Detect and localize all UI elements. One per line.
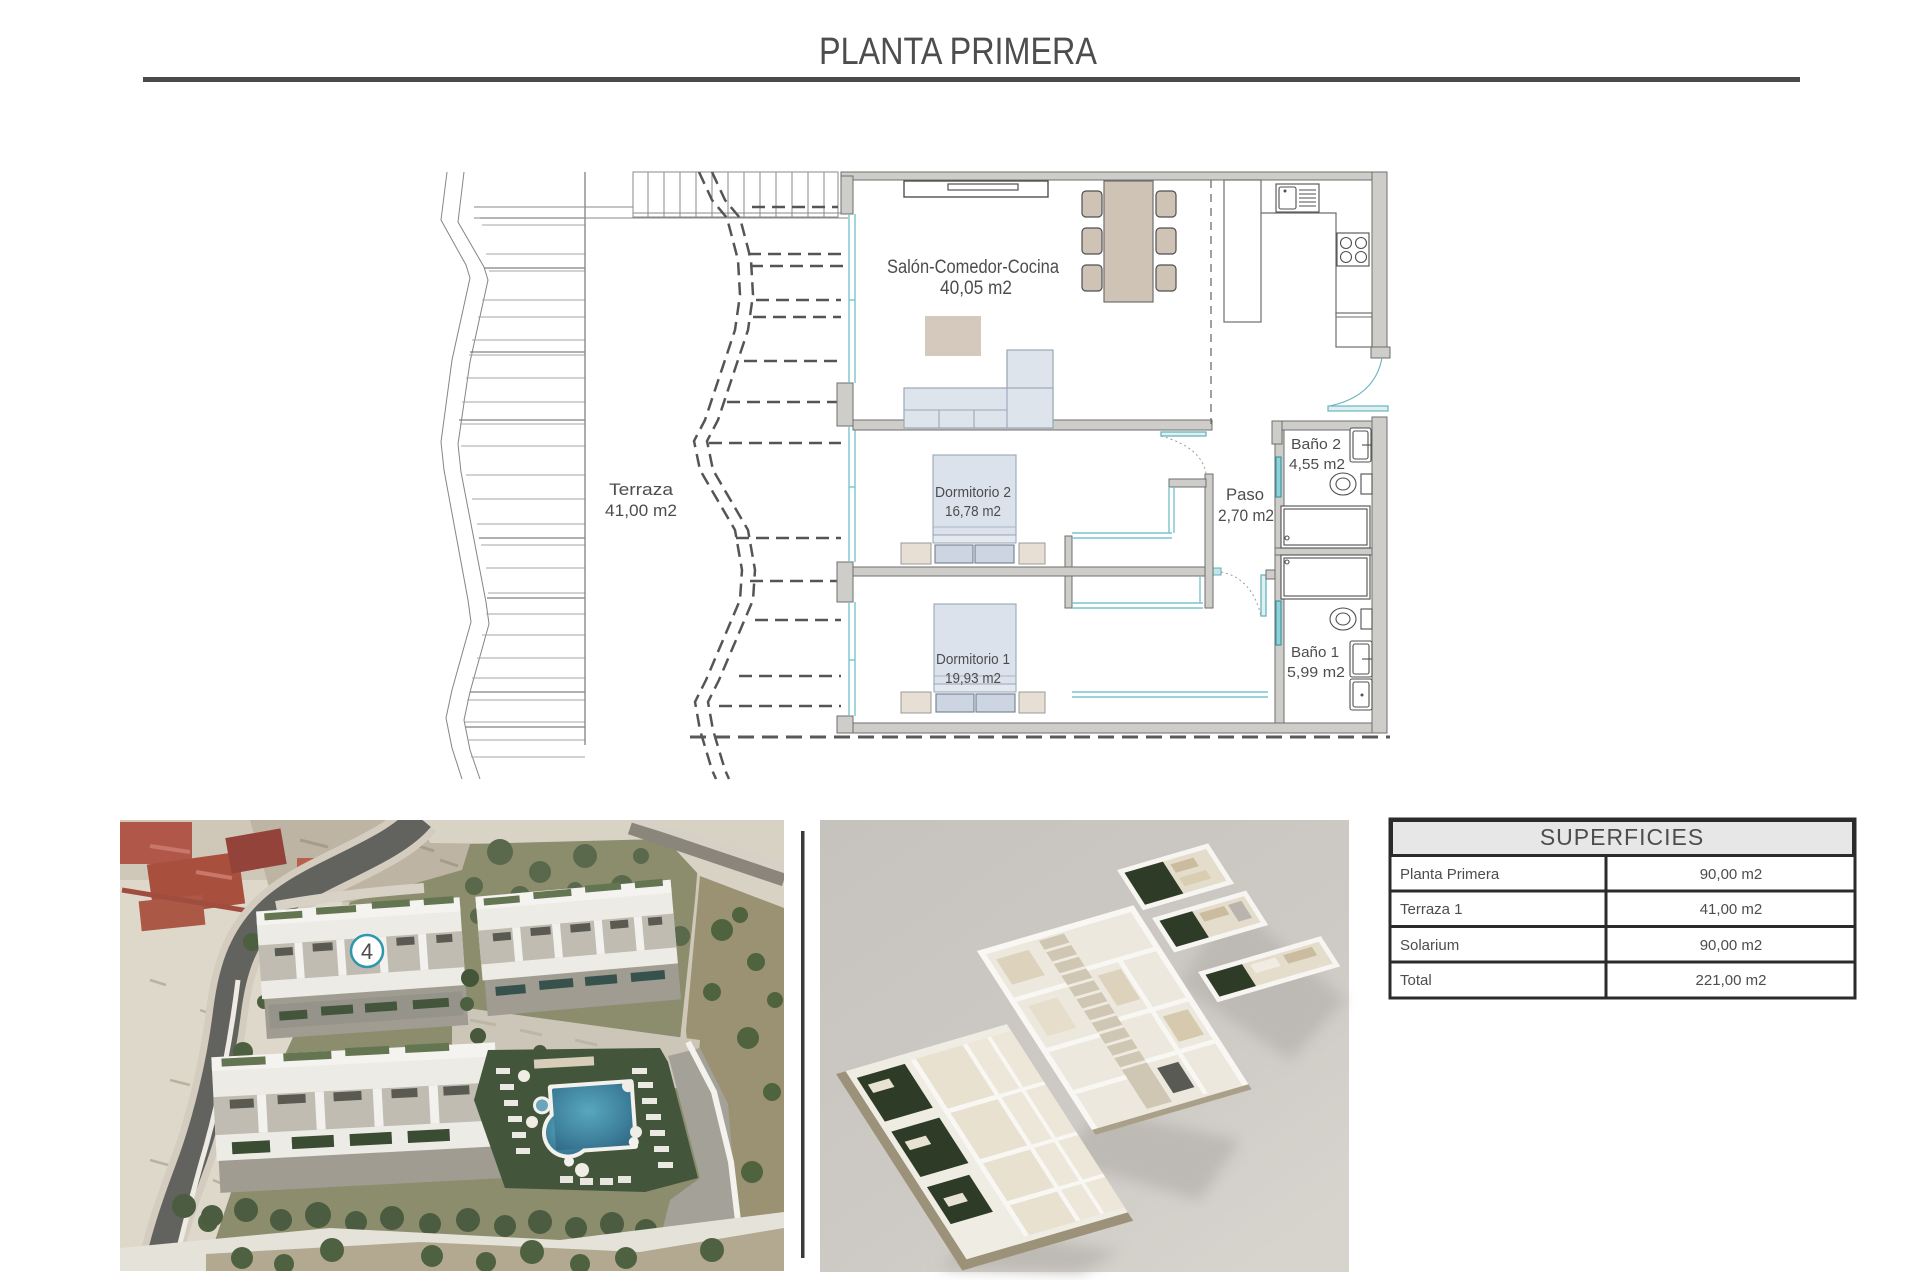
svg-text:4,55 m2: 4,55 m2: [1289, 457, 1345, 473]
svg-text:221,00 m2: 221,00 m2: [1696, 972, 1767, 989]
svg-text:41,00 m2: 41,00 m2: [605, 501, 677, 520]
svg-text:16,78 m2: 16,78 m2: [945, 504, 1001, 520]
svg-text:Baño 1: Baño 1: [1291, 645, 1339, 661]
svg-text:19,93 m2: 19,93 m2: [945, 671, 1001, 687]
svg-text:Dormitorio 2: Dormitorio 2: [935, 485, 1011, 501]
svg-text:90,00 m2: 90,00 m2: [1700, 866, 1763, 883]
svg-text:2,70 m2: 2,70 m2: [1218, 506, 1274, 525]
svg-text:Planta Primera: Planta Primera: [1400, 866, 1500, 883]
svg-text:5,99 m2: 5,99 m2: [1287, 665, 1345, 681]
svg-text:41,00 m2: 41,00 m2: [1700, 901, 1763, 918]
svg-text:40,05 m2: 40,05 m2: [940, 278, 1012, 299]
svg-text:Solarium: Solarium: [1400, 937, 1459, 954]
svg-text:Baño 2: Baño 2: [1291, 437, 1341, 453]
svg-text:Total: Total: [1400, 972, 1432, 989]
svg-text:SUPERFICIES: SUPERFICIES: [1540, 824, 1704, 850]
svg-text:Terraza: Terraza: [609, 480, 674, 499]
svg-text:90,00 m2: 90,00 m2: [1700, 937, 1763, 954]
svg-text:Dormitorio 1: Dormitorio 1: [936, 652, 1010, 668]
svg-text:4: 4: [361, 939, 373, 964]
svg-text:Terraza 1: Terraza 1: [1400, 901, 1463, 918]
svg-text:PLANTA PRIMERA: PLANTA PRIMERA: [819, 31, 1098, 73]
svg-text:Paso: Paso: [1226, 485, 1264, 504]
svg-text:Salón-Comedor-Cocina: Salón-Comedor-Cocina: [887, 257, 1059, 278]
